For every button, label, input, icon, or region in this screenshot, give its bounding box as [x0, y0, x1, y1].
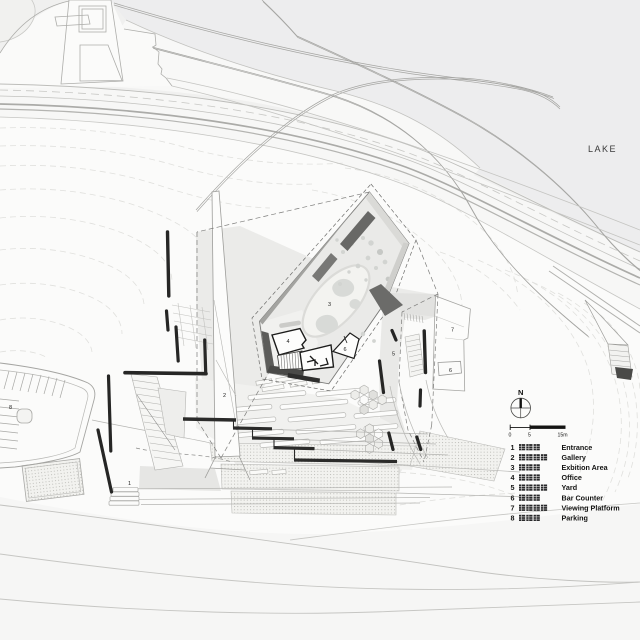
svg-text:6: 6 [449, 368, 452, 374]
svg-text:Exbition Area: Exbition Area [562, 463, 609, 472]
svg-text:4: 4 [286, 339, 289, 345]
svg-text:Bar Counter: Bar Counter [562, 493, 604, 502]
svg-text:1: 1 [511, 443, 515, 452]
svg-text:7: 7 [451, 328, 454, 334]
svg-text:6: 6 [511, 493, 515, 502]
svg-text:5: 5 [511, 483, 515, 492]
svg-text:2: 2 [511, 453, 515, 462]
svg-text:2: 2 [223, 393, 226, 399]
svg-text:Yard: Yard [562, 483, 578, 492]
svg-text:4: 4 [511, 473, 515, 482]
svg-text:7: 7 [511, 503, 515, 512]
svg-text:Office: Office [562, 473, 582, 482]
svg-text:3: 3 [511, 463, 515, 472]
svg-text:0: 0 [509, 433, 512, 439]
svg-text:5: 5 [528, 433, 531, 439]
svg-text:6: 6 [343, 347, 346, 353]
svg-text:15m: 15m [558, 433, 568, 439]
svg-text:LAKE: LAKE [588, 144, 617, 154]
svg-text:1: 1 [128, 481, 131, 487]
svg-text:8: 8 [9, 405, 12, 411]
svg-text:Entrance: Entrance [562, 443, 593, 452]
svg-text:Viewing Platform: Viewing Platform [562, 503, 620, 512]
svg-text:8: 8 [511, 514, 515, 523]
svg-text:Parking: Parking [562, 514, 588, 523]
svg-text:5: 5 [392, 352, 395, 358]
svg-text:N: N [518, 388, 523, 397]
svg-text:3: 3 [328, 302, 331, 308]
svg-text:Gallery: Gallery [562, 453, 586, 462]
